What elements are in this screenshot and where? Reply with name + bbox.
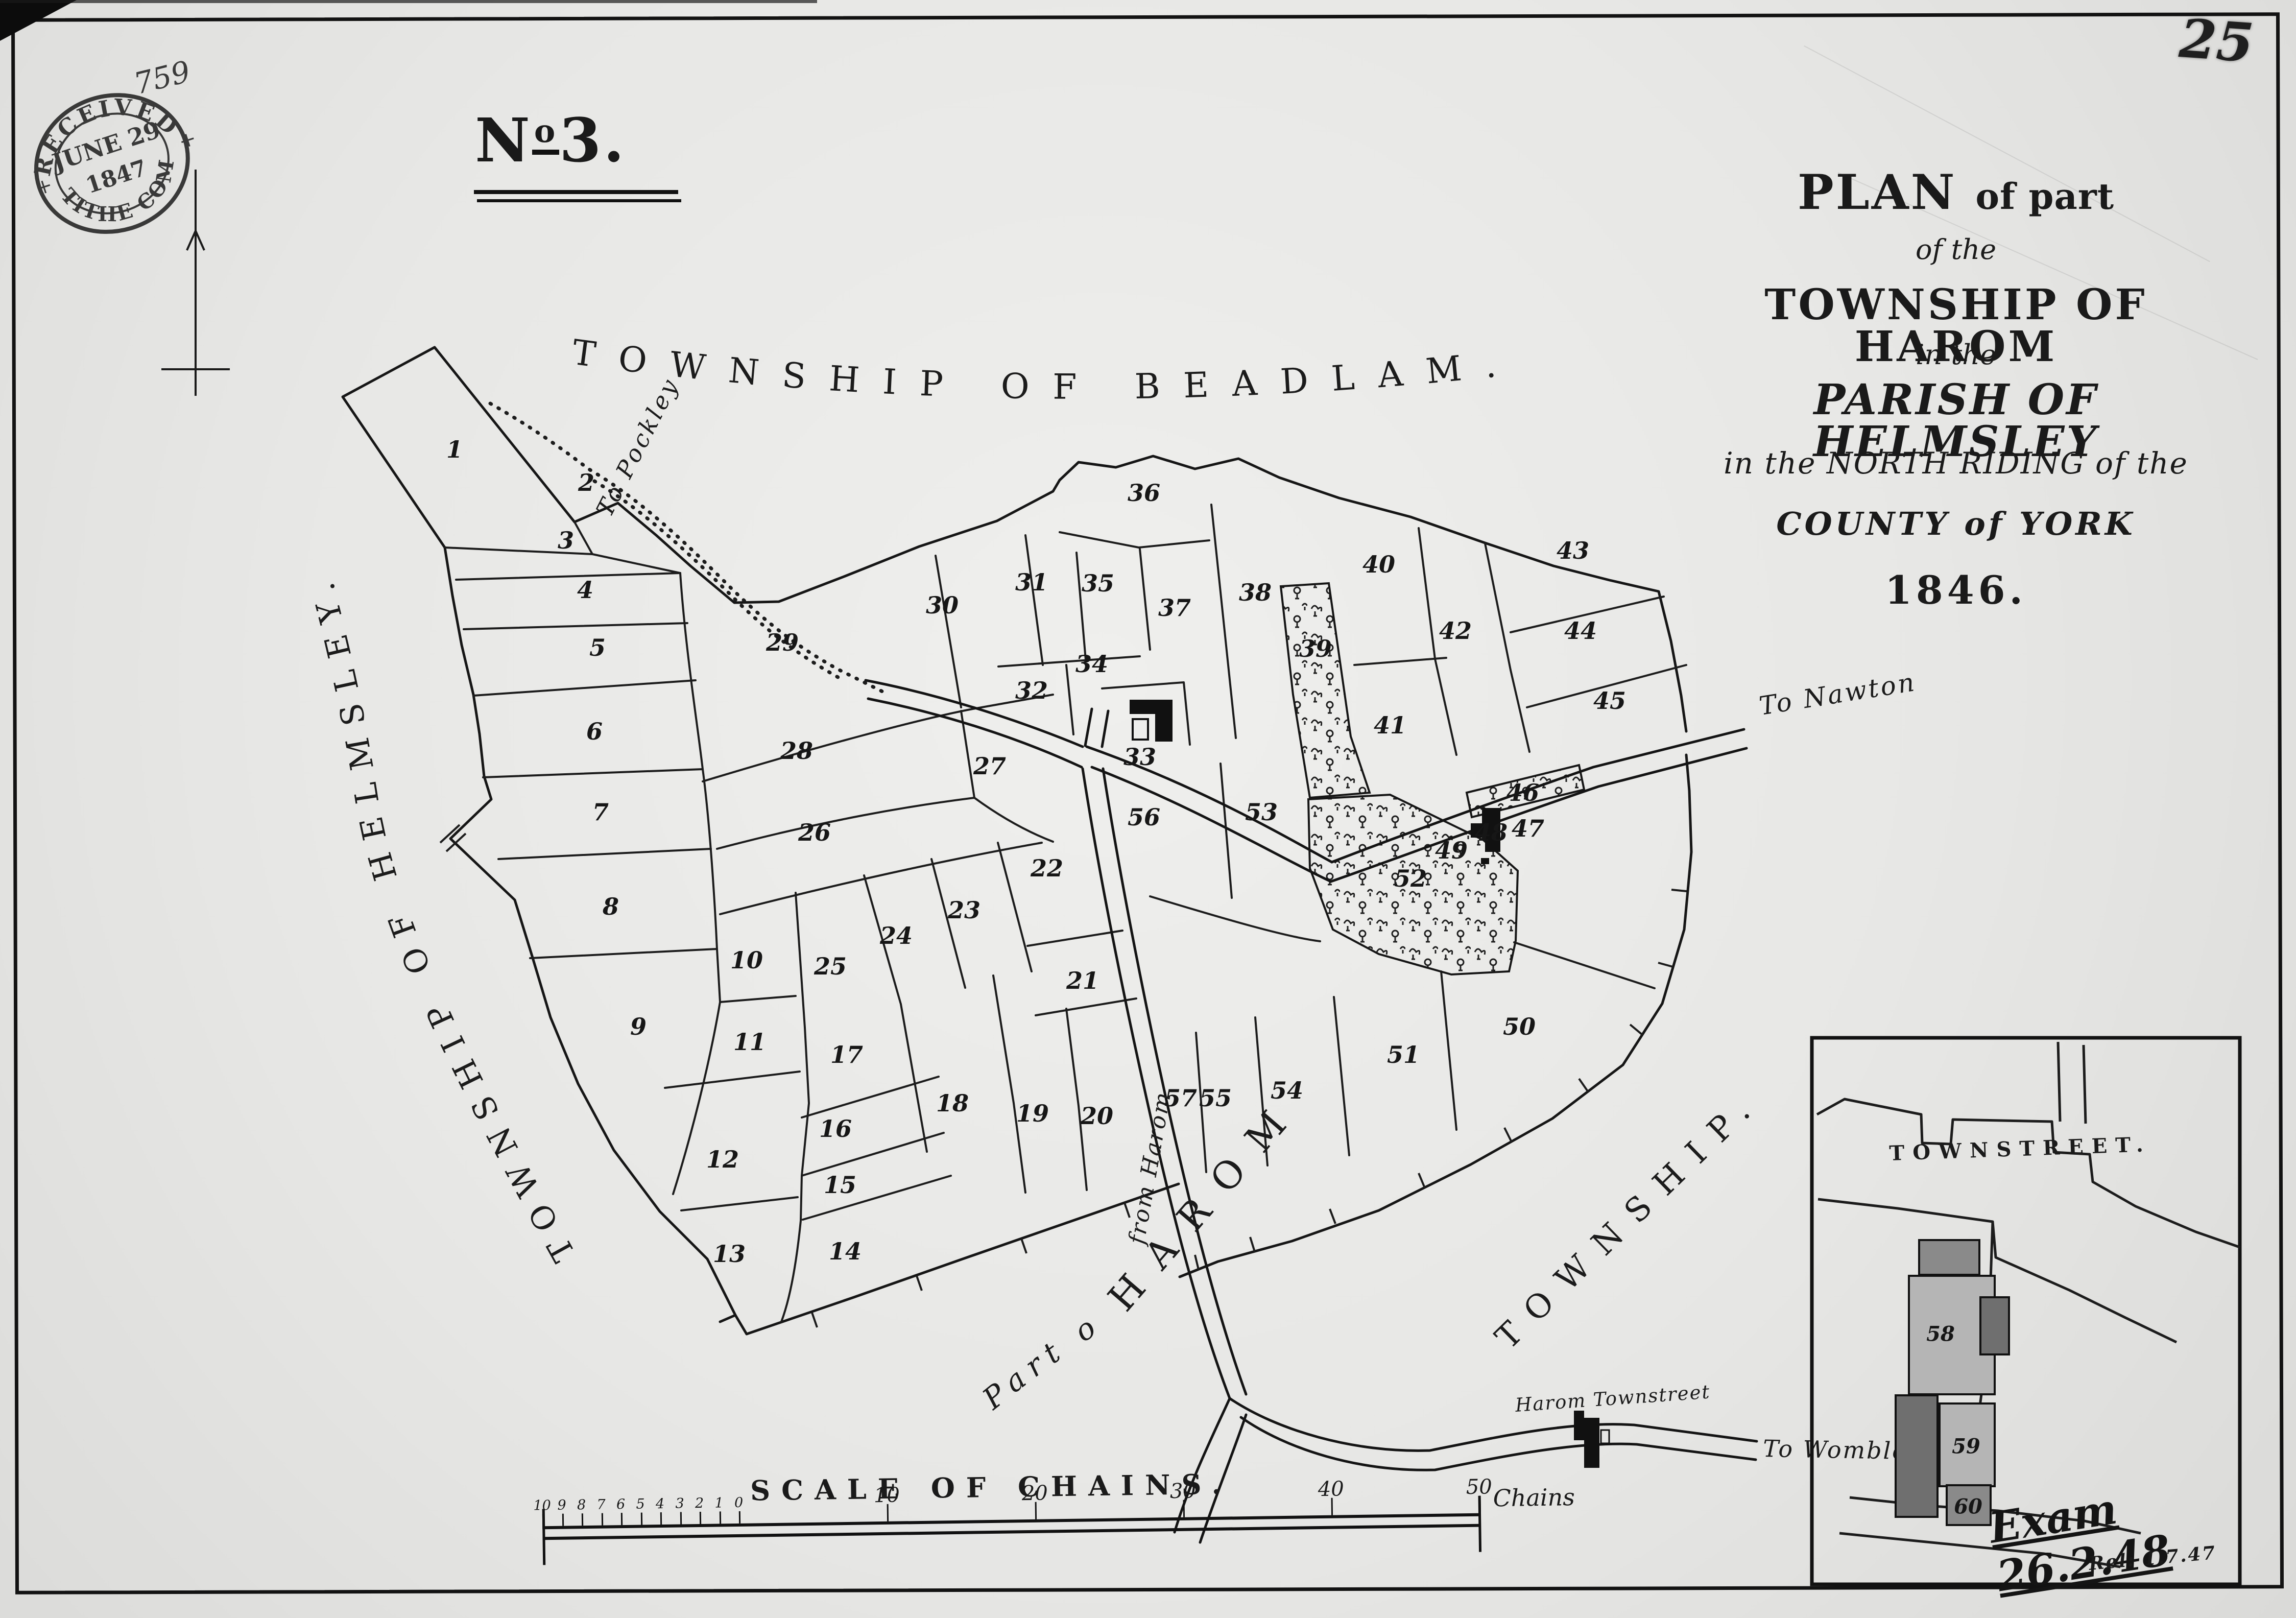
parcel-35-label: 35: [1082, 569, 1114, 597]
scale-label-5: 5: [636, 1496, 645, 1512]
harom-township-label: TOWNSHIP.: [1488, 1081, 1769, 1357]
scale-label-1: 1: [714, 1495, 724, 1511]
scale-tick-1: [719, 1511, 721, 1524]
parcel-39-label: 39: [1299, 635, 1332, 662]
inset-parcel-58-label: 58: [1926, 1322, 1955, 1346]
scale-tick-3: [680, 1512, 681, 1525]
inset-parcel-59-label: 59: [1952, 1435, 1980, 1459]
parcel-43-label: 43: [1557, 537, 1589, 564]
scale-label-7: 7: [596, 1497, 606, 1513]
scale-label-10: 10: [533, 1497, 551, 1513]
title-plan-word: PLAN: [1798, 164, 1957, 221]
scale-bar-rule: [542, 1513, 1479, 1540]
parcel-21-label: 21: [1066, 967, 1099, 994]
parcel-47-label: 47: [1512, 815, 1544, 842]
parcel-1-label: 1: [446, 436, 463, 463]
scale-label-0: 0: [734, 1495, 744, 1511]
plan-number-title: No3.: [475, 105, 626, 176]
townstreet-road-north-edge: [1230, 1398, 1757, 1450]
parcel-28-label: 28: [780, 737, 813, 765]
parcel-23-label: 23: [948, 896, 980, 924]
title-plan-line: PLAN of part: [1690, 169, 2221, 217]
township-of-beadlam-label: TOWNSHIP OF BEADLAM.: [570, 332, 1521, 408]
to-nawton-label: To Nawton: [1757, 667, 1918, 721]
parcel-13-label: 13: [713, 1240, 746, 1268]
parcel-51-label: 51: [1387, 1041, 1420, 1068]
title-plan-rest: of part: [1975, 175, 2114, 218]
township-of-helmsley-label: TOWNSHIP OF HELMSLEY.: [301, 566, 583, 1268]
plan-number-underline-2: [477, 199, 681, 202]
parcel-30-label: 30: [926, 591, 959, 619]
scale-label-50: 50: [1466, 1475, 1493, 1499]
parcel-36-label: 36: [1128, 479, 1160, 507]
parcel-27-label: 27: [973, 752, 1006, 780]
title-in-the: in the: [1690, 341, 2221, 369]
svg-text:TOWNSHIP.: TOWNSHIP.: [1488, 1081, 1769, 1357]
scale-label-4: 4: [656, 1496, 665, 1512]
inset-building-dark: [1896, 1395, 1938, 1517]
parcel-2-label: 2: [578, 469, 594, 496]
parcel-34-label: 34: [1075, 650, 1108, 678]
scale-tick-8: [582, 1513, 583, 1526]
parcel-6-label: 6: [586, 718, 603, 745]
parcel-5-label: 5: [589, 634, 606, 661]
parcel-29-label: 29: [766, 629, 799, 656]
stamp-side-mark-right: +: [176, 126, 199, 154]
inset-building-annex: [1980, 1297, 2009, 1354]
parcel-38-label: 38: [1239, 579, 1272, 606]
parcel-17-label: 17: [830, 1041, 863, 1068]
road-from-harom-west-edge: [1083, 769, 1230, 1398]
parcel-50-label: 50: [1503, 1013, 1536, 1040]
adjacent-township-labels: TOWNSHIP OF BEADLAM. TOWNSHIP OF HELMSLE…: [0, 0, 1770, 1416]
parcel-7-label: 7: [592, 798, 609, 826]
parcel-33-label: 33: [1123, 743, 1156, 771]
parcel-37-label: 37: [1158, 594, 1191, 622]
outbuilding-parcel-48: [1481, 858, 1489, 864]
title-year: 1846.: [1690, 571, 2221, 610]
scanned-map-sheet: TOWNSHIP OF BEADLAM. TOWNSHIP OF HELMSLE…: [0, 0, 2296, 1618]
svg-text:TOWNSHIP OF BEADLAM.: TOWNSHIP OF BEADLAM.: [570, 332, 1521, 408]
parcel-4-label: 4: [577, 576, 593, 604]
yard-outline-parcel-33: [1133, 719, 1148, 740]
parcel-8-label: 8: [603, 893, 619, 920]
scale-label-10: 10: [874, 1484, 900, 1508]
scale-label-6: 6: [616, 1496, 626, 1512]
harom-townstreet-label: Harom Townstreet: [1514, 1381, 1711, 1416]
scale-label-20: 20: [1022, 1481, 1048, 1505]
parcel-26-label: 26: [798, 819, 831, 846]
scale-label-40: 40: [1318, 1477, 1345, 1501]
scale-tick-9: [562, 1514, 563, 1526]
parcel-3-label: 3: [558, 527, 574, 554]
plan-no-number: 3.: [559, 105, 626, 176]
townstreet-building: [1574, 1411, 1584, 1440]
scale-tick-0: [739, 1511, 740, 1524]
scale-tick-10: [542, 1514, 544, 1526]
parcel-40-label: 40: [1362, 551, 1395, 578]
parcel-48-label: 48: [1475, 819, 1508, 846]
plan-no-superscript: o: [532, 112, 559, 155]
scale-label-3: 3: [675, 1495, 684, 1511]
title-north-riding: in the NORTH RIDING of the: [1690, 448, 2221, 478]
parcel-56-label: 56: [1128, 803, 1160, 831]
parcel-12-label: 12: [706, 1146, 739, 1173]
scale-tick-5: [640, 1513, 642, 1525]
parcel-53-label: 53: [1245, 798, 1278, 826]
parcel-42-label: 42: [1439, 617, 1472, 645]
inset-parcel-60-label: 60: [1954, 1495, 1982, 1519]
inset-building: [1919, 1240, 1979, 1275]
farm-building-parcel-33: [1130, 700, 1173, 742]
townstreet-building: [1584, 1418, 1599, 1468]
parcel-55-label: 55: [1199, 1084, 1232, 1112]
parcel-10-label: 10: [730, 946, 763, 974]
parcel-46-label: 46: [1506, 779, 1539, 806]
parcel-20-label: 20: [1081, 1102, 1113, 1130]
title-county-of-york: COUNTY of YORK: [1690, 508, 2221, 540]
parcel-45-label: 45: [1593, 687, 1626, 715]
scale-tick-7: [601, 1513, 603, 1526]
page-corner-number: 25: [2178, 7, 2256, 75]
parcel-19-label: 19: [1016, 1100, 1049, 1127]
plan-number-underline: [474, 190, 678, 194]
parcel-9-label: 9: [630, 1013, 647, 1040]
scale-label-30: 30: [1170, 1479, 1197, 1503]
parcel-16-label: 16: [819, 1115, 852, 1143]
parcel-31-label: 31: [1015, 568, 1048, 596]
plan-no-prefix: N: [475, 105, 532, 176]
inset-townstreet-label: TOWNSTREET.: [1889, 1132, 2152, 1165]
parcel-14-label: 14: [829, 1238, 862, 1265]
scale-tick-2: [700, 1512, 701, 1524]
parcel-22-label: 22: [1031, 854, 1063, 882]
scale-tick-4: [660, 1512, 662, 1525]
inset-buildings: [1896, 1240, 2009, 1525]
townstreet-building-outline: [1601, 1430, 1609, 1443]
scale-label-9: 9: [557, 1497, 566, 1513]
parcel-41-label: 41: [1374, 711, 1406, 739]
scale-of-chains: SCALE OF CHAINS. 1098765432101020304050 …: [542, 1463, 1590, 1569]
parcel-54-label: 54: [1271, 1077, 1303, 1104]
parcel-57-label: 57: [1164, 1084, 1197, 1112]
parcel-44-label: 44: [1564, 617, 1597, 645]
farm-lane: [1085, 709, 1108, 747]
dotted-track-to-pockley: [490, 403, 889, 695]
parcel-52-label: 52: [1394, 865, 1427, 892]
title-of-the: of the: [1690, 236, 2221, 264]
parcel-25-label: 25: [814, 953, 847, 980]
parcel-11-label: 11: [733, 1028, 766, 1056]
scale-unit-label: Chains: [1493, 1483, 1575, 1512]
townstreet-road-south-edge: [1241, 1417, 1756, 1470]
to-pockley-label: To Pockley: [591, 373, 684, 521]
woodland-parcel-39: [1281, 583, 1370, 798]
scale-label-2: 2: [695, 1495, 704, 1511]
parcel-15-label: 15: [824, 1171, 856, 1199]
scale-tick-6: [621, 1513, 623, 1525]
parcel-32-label: 32: [1015, 677, 1048, 704]
parcel-18-label: 18: [936, 1089, 969, 1117]
svg-text:TOWNSHIP OF HELMSLEY.: TOWNSHIP OF HELMSLEY.: [301, 566, 583, 1268]
parcel-24-label: 24: [880, 922, 913, 949]
parcel-49-label: 49: [1435, 837, 1468, 864]
scale-label-8: 8: [577, 1497, 586, 1513]
